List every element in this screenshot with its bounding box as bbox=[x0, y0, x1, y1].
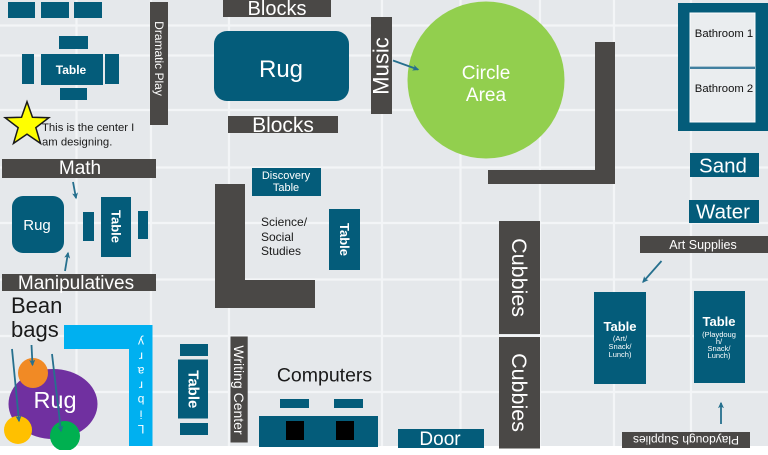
svg-text:y: y bbox=[138, 335, 144, 349]
svg-text:Cubbies: Cubbies bbox=[507, 238, 531, 317]
svg-text:Art Supplies: Art Supplies bbox=[669, 238, 736, 252]
svg-text:am designing.: am designing. bbox=[42, 137, 112, 149]
svg-text:Rug: Rug bbox=[23, 217, 51, 234]
svg-text:Table: Table bbox=[109, 210, 124, 243]
svg-text:Writing Center: Writing Center bbox=[231, 345, 247, 435]
svg-text:r: r bbox=[139, 379, 143, 393]
svg-text:Blocks: Blocks bbox=[252, 114, 314, 137]
svg-text:Rug: Rug bbox=[259, 56, 303, 83]
svg-text:Area: Area bbox=[466, 85, 507, 106]
svg-text:Bathroom 1: Bathroom 1 bbox=[695, 28, 753, 40]
svg-text:r: r bbox=[139, 350, 143, 364]
svg-text:Bean: Bean bbox=[11, 293, 62, 318]
svg-text:Table: Table bbox=[337, 223, 352, 256]
svg-text:Music: Music bbox=[369, 37, 394, 94]
svg-text:L: L bbox=[137, 422, 144, 436]
svg-text:Cubbies: Cubbies bbox=[507, 353, 531, 432]
svg-text:Math: Math bbox=[59, 158, 101, 179]
svg-text:Rug: Rug bbox=[33, 387, 76, 413]
svg-text:b: b bbox=[137, 393, 144, 407]
svg-text:Lunch): Lunch) bbox=[609, 350, 632, 359]
svg-text:bags: bags bbox=[11, 317, 59, 342]
svg-text:Computers: Computers bbox=[277, 365, 373, 387]
svg-text:Water: Water bbox=[696, 201, 750, 224]
svg-text:i: i bbox=[140, 408, 143, 422]
svg-text:Social: Social bbox=[261, 230, 294, 244]
svg-text:Table: Table bbox=[703, 314, 736, 329]
svg-text:Studies: Studies bbox=[261, 244, 301, 258]
svg-text:Science/: Science/ bbox=[261, 215, 308, 229]
svg-text:Table: Table bbox=[185, 370, 202, 408]
svg-text:Table: Table bbox=[56, 63, 87, 77]
svg-text:Door: Door bbox=[419, 429, 461, 450]
svg-text:Table: Table bbox=[604, 319, 637, 334]
svg-text:Manipulatives: Manipulatives bbox=[18, 273, 134, 294]
svg-text:Blocks: Blocks bbox=[248, 0, 307, 20]
svg-text:a: a bbox=[137, 364, 144, 378]
svg-text:Discovery: Discovery bbox=[262, 170, 311, 182]
svg-text:Table: Table bbox=[273, 182, 299, 194]
svg-text:Playdough Supplies: Playdough Supplies bbox=[633, 433, 739, 447]
svg-text:Bathroom 2: Bathroom 2 bbox=[695, 83, 753, 95]
svg-text:Lunch): Lunch) bbox=[708, 351, 731, 360]
svg-text:Dramatic Play: Dramatic Play bbox=[152, 21, 166, 96]
svg-text:Circle: Circle bbox=[462, 63, 511, 84]
svg-text:This is the center I: This is the center I bbox=[42, 122, 134, 134]
svg-text:Sand: Sand bbox=[699, 155, 747, 178]
